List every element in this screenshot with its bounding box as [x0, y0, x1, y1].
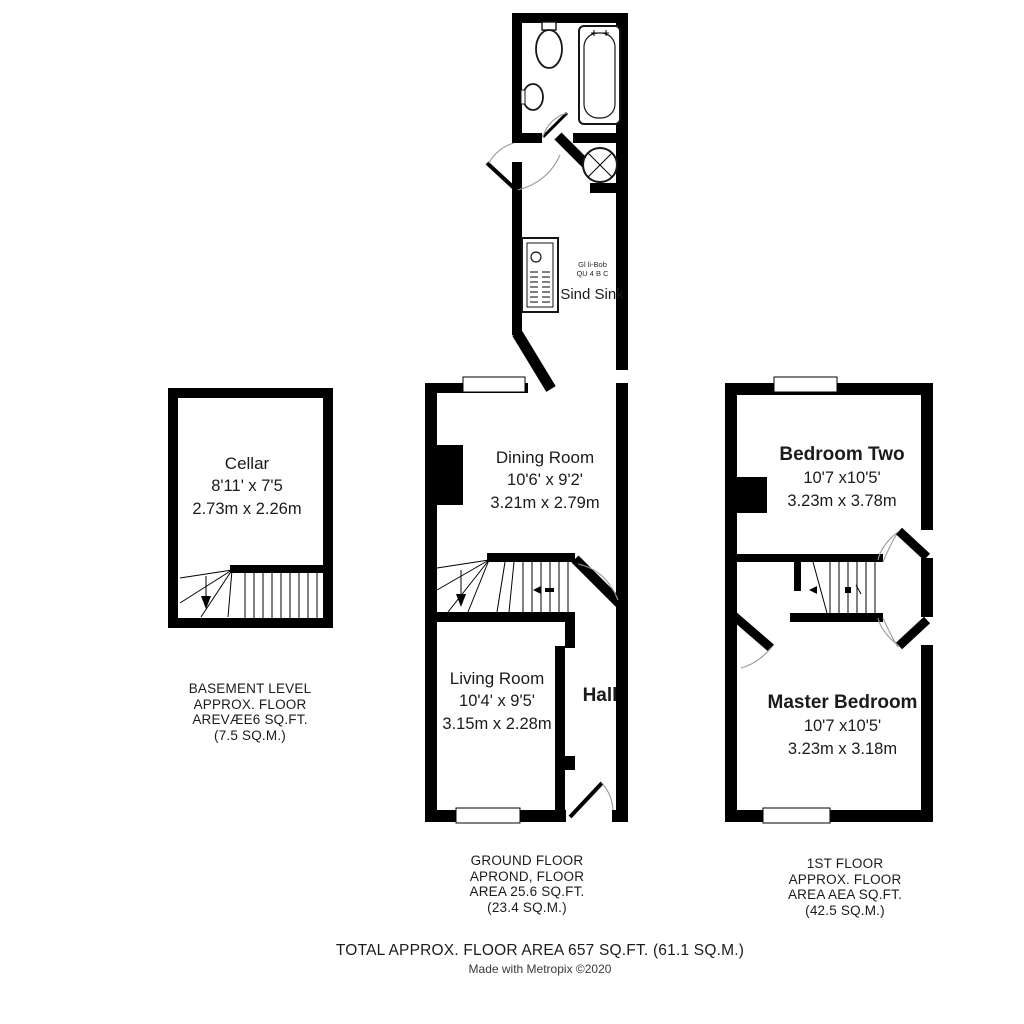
caption-line: (23.4 SQ.M.)	[437, 900, 617, 916]
kitchen-note: Gl li-Bob QU 4 B C	[560, 260, 625, 278]
cellar-stairs	[180, 565, 323, 618]
room-dimensions-imperial: 10'6' x 9'2'	[455, 469, 635, 492]
caption-line: GROUND FLOOR	[437, 853, 617, 869]
ground-stairs	[437, 553, 621, 648]
basement-caption: BASEMENT LEVEL APPROX. FLOOR AREVÆE6 SQ.…	[160, 681, 340, 743]
first-floor-stairs	[737, 532, 898, 647]
side-entrance-door	[487, 143, 560, 190]
footer: TOTAL APPROX. FLOOR AREA 657 SQ.FT. (61.…	[56, 942, 1024, 976]
room-dimensions-metric: 3.23m x 3.18m	[735, 738, 950, 761]
sink-label: Sind Sink	[552, 286, 632, 303]
room-name: Master Bedroom	[735, 691, 950, 715]
cellar-label: Cellar 8'11' x 7'5 2.73m x 2.26m	[167, 452, 327, 521]
wall	[168, 618, 333, 628]
caption-line: APPROX. FLOOR	[160, 697, 340, 713]
caption-line: AREVÆE6 SQ.FT.	[160, 712, 340, 728]
ceiling-light-icon	[583, 148, 617, 182]
bedroom-two-label: Bedroom Two 10'7 x10'5' 3.23m x 3.78m	[742, 443, 942, 513]
basin-icon	[521, 84, 543, 110]
window	[456, 808, 520, 823]
caption-line: AREA AEA SQ.FT.	[755, 887, 935, 903]
toilet-icon	[536, 22, 562, 68]
wall	[921, 558, 933, 617]
wall	[168, 388, 333, 398]
stair-direction-glyph	[809, 585, 861, 594]
room-name: Bedroom Two	[742, 443, 942, 467]
kitchen-note-line: Gl li-Bob	[560, 260, 625, 269]
wall	[590, 183, 628, 193]
caption-line: (42.5 SQ.M.)	[755, 903, 935, 919]
room-dimensions-metric: 2.73m x 2.26m	[167, 498, 327, 521]
credit-line: Made with Metropix ©2020	[56, 962, 1024, 976]
caption-line: APROND, FLOOR	[437, 869, 617, 885]
first-floor-caption: 1ST FLOOR APPROX. FLOOR AREA AEA SQ.FT. …	[755, 856, 935, 918]
bathroom-door	[543, 113, 567, 137]
caption-line: AREA 25.6 SQ.FT.	[437, 884, 617, 900]
kitchen-note-line: QU 4 B C	[560, 269, 625, 278]
caption-line: APPROX. FLOOR	[755, 872, 935, 888]
wall	[512, 13, 522, 143]
diagonal-door-wall	[575, 559, 621, 605]
room-dimensions-imperial: 10'7 x10'5'	[735, 715, 950, 738]
room-name: Living Room	[407, 667, 587, 690]
room-dimensions-metric: 3.21m x 2.79m	[455, 492, 635, 515]
wall	[573, 133, 628, 143]
window	[463, 377, 525, 392]
total-area-line: TOTAL APPROX. FLOOR AREA 657 SQ.FT. (61.…	[56, 942, 1024, 960]
floorplan-page: Cellar 8'11' x 7'5 2.73m x 2.26m Dining …	[0, 0, 1024, 1024]
wall	[612, 810, 628, 822]
caption-line: BASEMENT LEVEL	[160, 681, 340, 697]
stair-direction-arrow	[456, 570, 466, 607]
room-dimensions-imperial: 10'7 x10'5'	[742, 467, 942, 490]
stair-direction-glyph	[533, 586, 554, 594]
room-name: Dining Room	[455, 446, 635, 469]
front-door	[570, 783, 613, 817]
caption-line: (7.5 SQ.M.)	[160, 728, 340, 744]
room-dimensions-imperial: 8'11' x 7'5	[167, 475, 327, 498]
window	[774, 377, 837, 392]
wall	[512, 13, 628, 23]
wall	[512, 133, 542, 143]
room-dimensions-metric: 3.15m x 2.28m	[407, 713, 587, 736]
room-dimensions-metric: 3.23m x 3.78m	[742, 490, 942, 513]
window	[763, 808, 830, 823]
caption-line: 1ST FLOOR	[755, 856, 935, 872]
dining-room-label: Dining Room 10'6' x 9'2' 3.21m x 2.79m	[455, 446, 635, 515]
master-bedroom-label: Master Bedroom 10'7 x10'5' 3.23m x 3.18m	[735, 691, 950, 761]
ground-floor-caption: GROUND FLOOR APROND, FLOOR AREA 25.6 SQ.…	[437, 853, 617, 915]
wall	[425, 383, 437, 822]
room-dimensions-imperial: 10'4' x 9'5'	[407, 690, 587, 713]
room-name: Cellar	[167, 452, 327, 475]
master-bedroom-door-left	[734, 616, 771, 668]
living-room-label: Living Room 10'4' x 9'5' 3.15m x 2.28m	[407, 667, 587, 736]
hall-wall	[565, 756, 575, 770]
bathtub-icon	[579, 26, 620, 124]
hall-label: Hall	[572, 685, 628, 707]
